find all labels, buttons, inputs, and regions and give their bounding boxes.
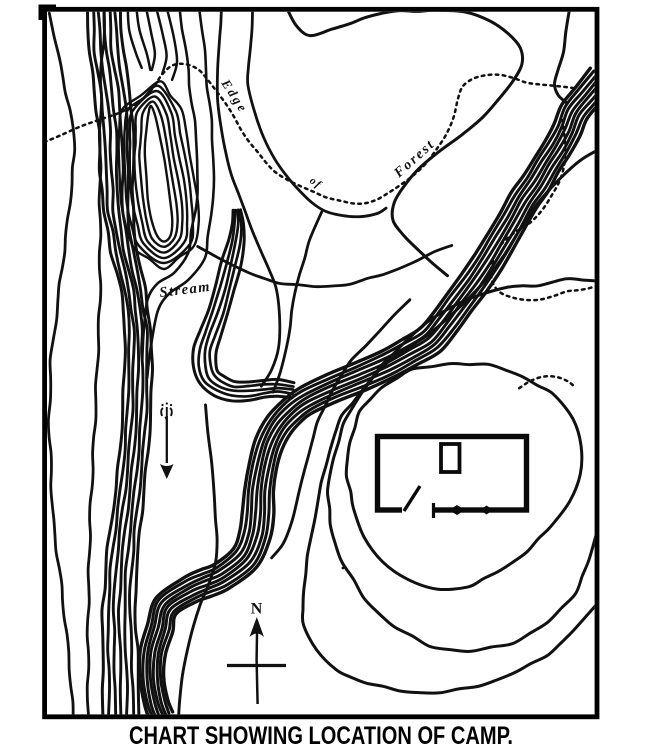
svg-text:N: N [251,601,263,618]
svg-text:CHART SHOWING LOCATION OF CAMP: CHART SHOWING LOCATION OF CAMP. [129,722,513,750]
